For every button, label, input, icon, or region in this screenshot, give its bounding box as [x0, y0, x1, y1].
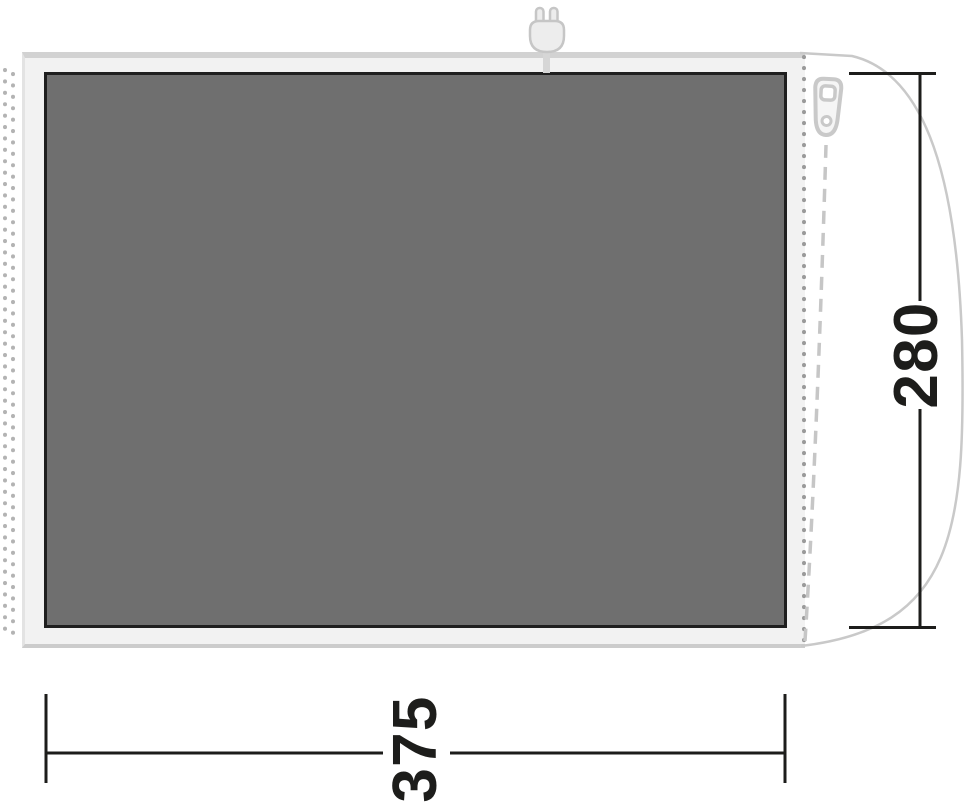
zipper-pull-body [813, 78, 842, 135]
zipper-pull-icon [813, 78, 842, 135]
zipper-dashed-line [805, 145, 826, 641]
plug-body [530, 21, 564, 52]
plug-prong [550, 8, 558, 25]
width-dimension-label: 375 [385, 695, 447, 802]
height-dimension-label: 280 [886, 301, 948, 408]
diagram-canvas: 375 280 [0, 0, 974, 804]
plug-prong [536, 8, 544, 25]
pegging-dots-left [5, 70, 13, 640]
zipper-pull-pin [822, 116, 831, 125]
floor-area [44, 72, 787, 628]
zipper-pull-hole [821, 86, 836, 101]
